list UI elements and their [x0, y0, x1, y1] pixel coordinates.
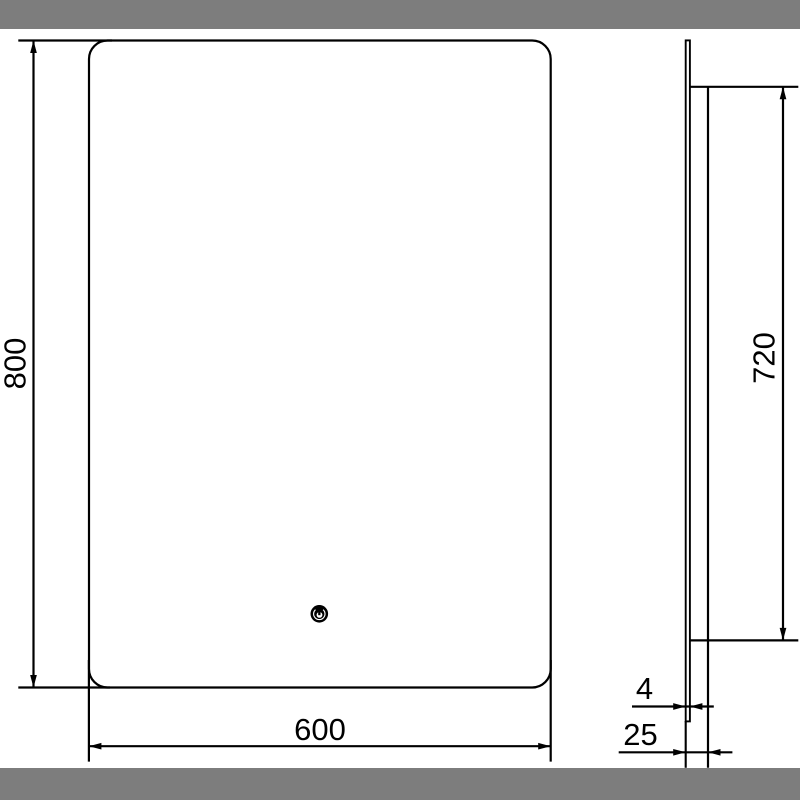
svg-text:600: 600: [294, 712, 346, 747]
svg-text:800: 800: [0, 338, 33, 390]
svg-text:25: 25: [623, 717, 657, 752]
svg-text:720: 720: [747, 332, 782, 384]
svg-text:4: 4: [636, 671, 653, 706]
